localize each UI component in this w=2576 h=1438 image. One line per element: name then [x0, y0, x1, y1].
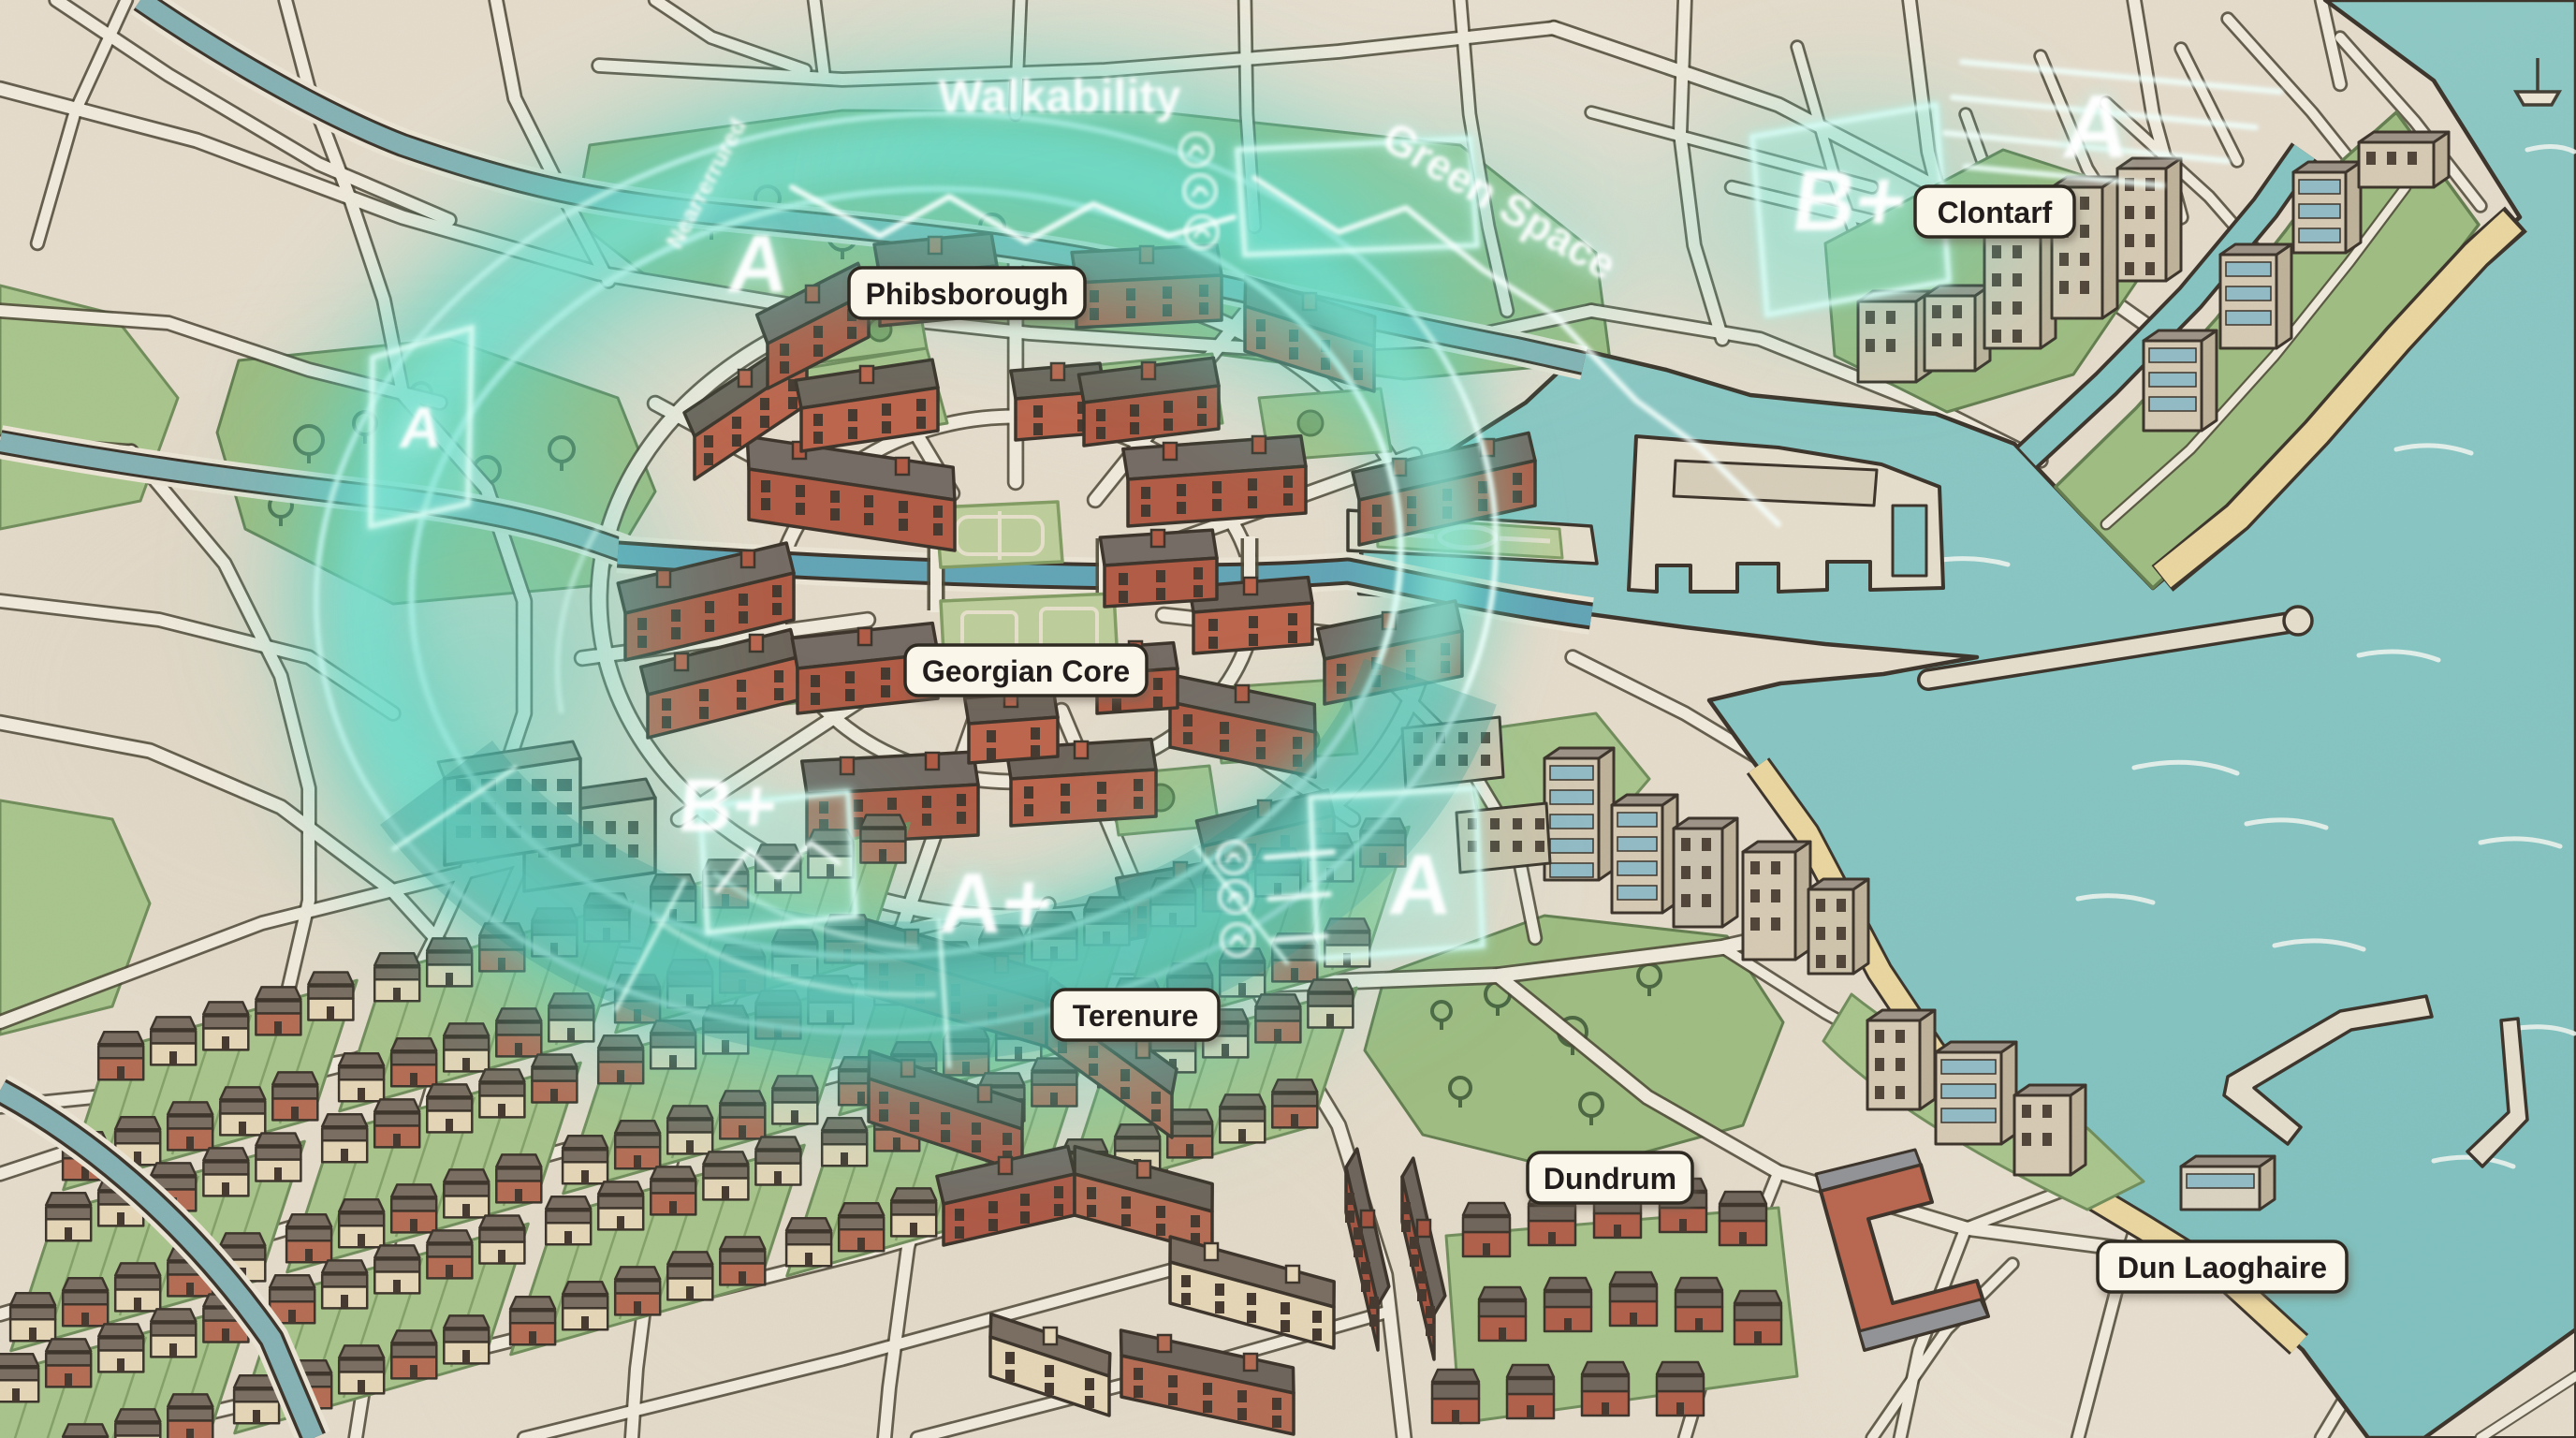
svg-text:Phibsborough: Phibsborough: [866, 277, 1069, 311]
svg-text:A+: A+: [937, 855, 1056, 951]
svg-text:A: A: [1385, 836, 1455, 932]
svg-text:Dun Laoghaire: Dun Laoghaire: [2117, 1251, 2327, 1284]
svg-text:Clontarf: Clontarf: [1938, 196, 2053, 229]
svg-text:Dundrum: Dundrum: [1544, 1162, 1676, 1196]
svg-text:Georgian Core: Georgian Core: [922, 654, 1130, 688]
svg-text:B+: B+: [675, 763, 782, 847]
svg-text:A: A: [724, 217, 793, 310]
svg-text:A: A: [2058, 77, 2134, 177]
svg-text:Walkability: Walkability: [938, 70, 1181, 123]
svg-text:B+: B+: [1787, 152, 1913, 248]
svg-text:Terenure: Terenure: [1073, 999, 1199, 1033]
